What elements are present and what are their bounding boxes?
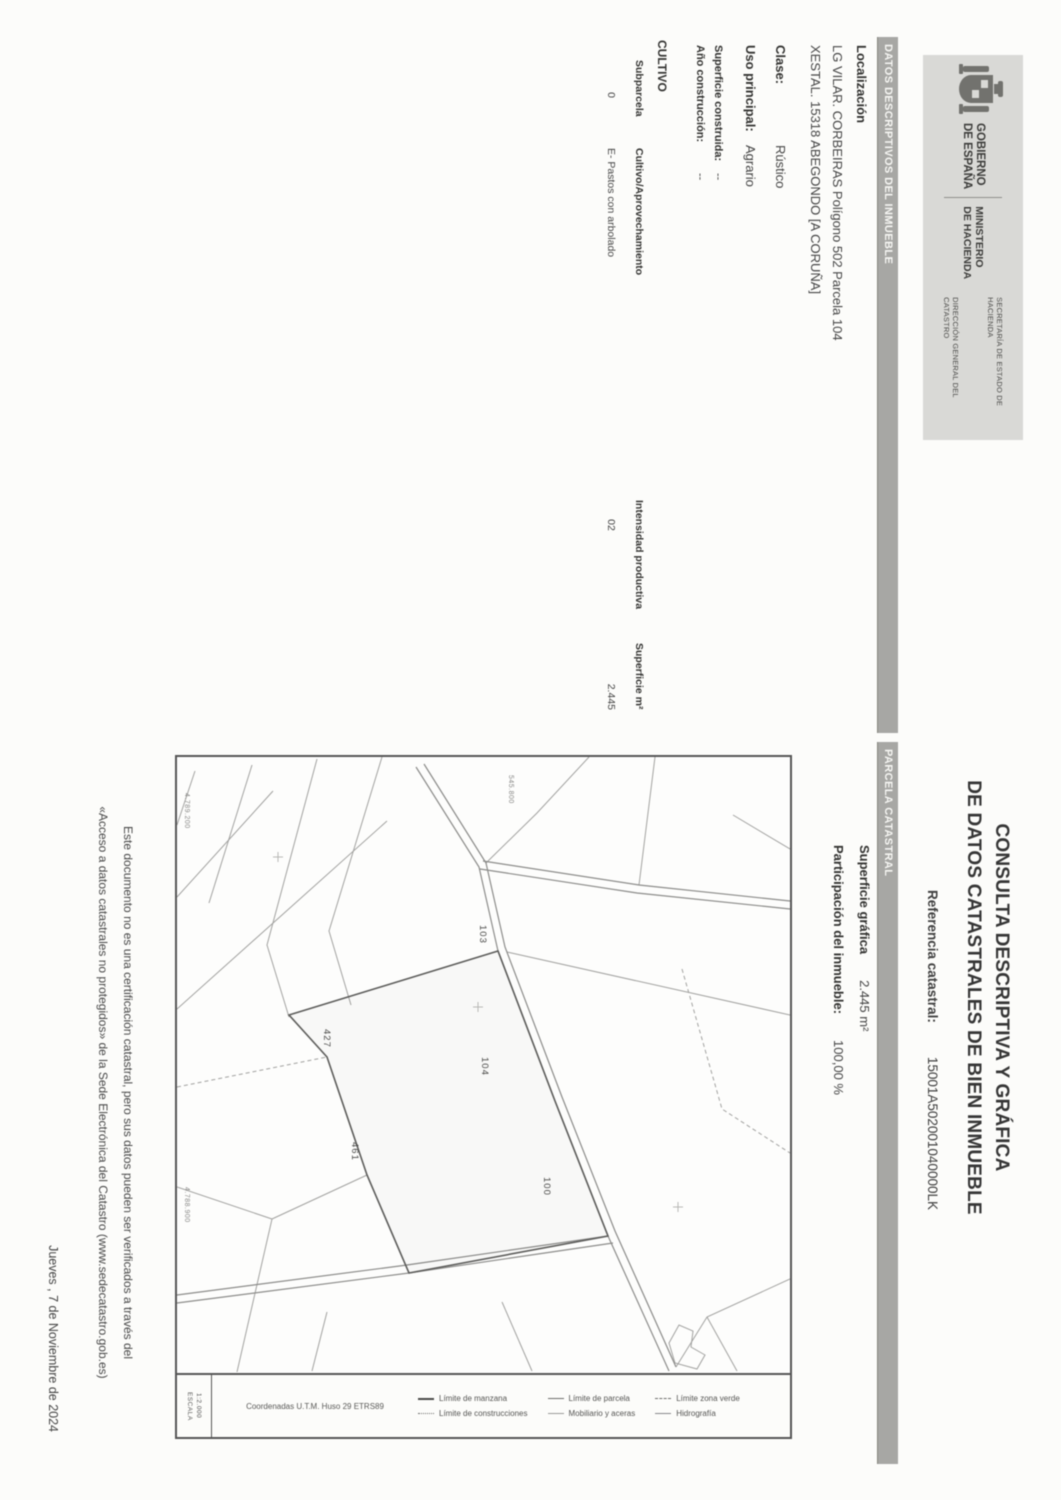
map-scale-label: ESCALA <box>186 1392 193 1421</box>
superficie-grafica-value: 2.445 m² <box>857 980 872 1031</box>
document-title: CONSULTA DESCRIPTIVA Y GRÁFICA DE DATOS … <box>959 745 1015 1250</box>
title-line-2: DE DATOS CATASTRALES DE BIEN INMUEBLE <box>959 745 987 1250</box>
legend-label: Hidrografía <box>676 1409 716 1418</box>
superficie-construida-value: -- <box>712 173 724 180</box>
superficie-grafica-label: Superficie gráfica <box>857 845 872 954</box>
clase-label: Clase: <box>773 45 788 145</box>
reference-value: 15001A502001040000LK <box>925 1057 940 1210</box>
clase-row: Clase:Rústico <box>773 45 788 188</box>
address-line-1: LG VILAR. CORBEIRAS Polígono 502 Parcela… <box>830 45 845 341</box>
ministry-name-line1: MINISTERIO <box>973 206 985 279</box>
anio-construccion-label: Año construcción: <box>694 45 706 173</box>
legend-item: Límite de construcciones <box>418 1409 528 1418</box>
cultivo-col-superficie: Superficie m² <box>633 643 645 710</box>
legend-swatch-parcela-icon <box>548 1398 564 1399</box>
uso-principal-row: Uso principal:Agrario <box>743 45 758 187</box>
legend-label: Límite de construcciones <box>439 1409 528 1418</box>
participacion-label: Participación del inmueble: <box>831 845 846 1014</box>
address-line-2: XESTAL. 15318 ABEGONDO [A CORUÑA] <box>808 45 823 294</box>
legend-item: Límite de parcela <box>548 1394 636 1403</box>
disclaimer: Este documento no es una certificación c… <box>90 745 140 1440</box>
section-bar-parcela: PARCELA CATASTRAL <box>877 742 898 1464</box>
parcel-label-104: 104 <box>479 1057 490 1076</box>
cultivo-cell-subparcela: 0 <box>605 60 617 130</box>
secretaria-text: SECRETARÍA DE ESTADO DE HACIENDA <box>986 297 1004 417</box>
superficie-grafica-row: Superficie gráfica2.445 m² <box>857 845 872 1031</box>
title-line-1: CONSULTA DESCRIPTIVA Y GRÁFICA <box>987 745 1015 1250</box>
reference-label: Referencia catastral: <box>925 890 940 1023</box>
superficie-construida-row: Superficie construida:-- <box>712 45 724 180</box>
cultivo-col-subparcela: Subparcela <box>633 60 645 117</box>
document-page: GOBIERNO DE ESPAÑA MINISTERIO DE HACIEND… <box>0 0 1061 1500</box>
section-bar-inmueble: DATOS DESCRIPTIVOS DEL INMUEBLE <box>877 37 898 733</box>
spain-coat-of-arms-icon <box>941 63 1006 115</box>
anio-construccion-value: -- <box>694 173 706 180</box>
government-logo-box: GOBIERNO DE ESPAÑA MINISTERIO DE HACIEND… <box>923 55 1023 440</box>
legend-swatch-mobiliario-icon <box>548 1413 564 1414</box>
map-coordinate-label-top: 545.800 <box>507 775 514 804</box>
subject-parcel-outline <box>289 951 608 1273</box>
legend-label: Límite zona verde <box>676 1394 740 1403</box>
legend-swatch-hidrografia-icon <box>655 1413 671 1414</box>
uso-label: Uso principal: <box>743 45 758 145</box>
parcel-label-427: 427 <box>321 1029 332 1048</box>
government-name-line1: GOBIERNO <box>973 123 986 189</box>
legend-swatch-construcciones-icon <box>418 1413 434 1414</box>
cultivo-col-cultivo: Cultivo/Aprovechamiento <box>633 148 645 275</box>
map-coordinates-note: Coordenadas U.T.M. Huso 29 ETRS89 <box>212 1375 418 1437</box>
participacion-row: Participación del inmueble:100,00 % <box>831 845 846 1095</box>
legend-label: Mobiliario y aceras <box>569 1409 636 1418</box>
map-coordinate-label-left-bottom: 4.788.900 <box>183 1187 190 1223</box>
parcel-label-100: 100 <box>541 1177 552 1196</box>
localizacion-label: Localización <box>854 45 869 123</box>
map-legend: Límite de manzana Límite de parcela Lími… <box>418 1375 790 1437</box>
disclaimer-line-1: Este documento no es una certificación c… <box>115 745 140 1440</box>
anio-construccion-row: Año construcción:-- <box>694 45 706 180</box>
parcel-label-103: 103 <box>477 925 488 944</box>
cultivo-cell-superficie: 2.445 <box>605 643 617 710</box>
document-date: Jueves , 7 de Noviembre de 2024 <box>46 1145 60 1432</box>
ministry-name-line2: DE HACIENDA <box>961 206 973 279</box>
map-scale-box: ESCALA 1:2.000 <box>177 1375 212 1437</box>
cultivo-col-intensidad: Intensidad productiva <box>633 500 645 609</box>
legend-item: Hidrografía <box>655 1409 740 1418</box>
uso-value: Agrario <box>743 145 758 187</box>
map-scale-value: 1:2.000 <box>195 1393 202 1418</box>
map-footer: ESCALA 1:2.000 Coordenadas U.T.M. Huso 2… <box>177 1373 790 1437</box>
legend-label: Límite de manzana <box>439 1394 507 1403</box>
cultivo-cell-intensidad: 02 <box>605 500 617 550</box>
cultivo-title: CULTIVO <box>655 40 669 92</box>
legend-item: Límite de manzana <box>418 1394 528 1403</box>
legend-item: Límite zona verde <box>655 1394 740 1403</box>
map-coordinate-label-left: 4.789.200 <box>183 793 190 829</box>
catastral-reference: Referencia catastral:15001A502001040000L… <box>925 890 940 1210</box>
legend-swatch-zona-verde-icon <box>655 1398 671 1399</box>
superficie-construida-label: Superficie construida: <box>712 45 724 173</box>
legend-item: Mobiliario y aceras <box>548 1409 636 1418</box>
logo-divider <box>944 197 1002 198</box>
cultivo-cell-cultivo: E- Pastos con arbolado <box>605 148 617 257</box>
direccion-text: DIRECCIÓN GENERAL DEL CATASTRO <box>942 297 960 417</box>
clase-value: Rústico <box>773 145 788 188</box>
cadastral-map: 103 427 104 461 100 4.789.200 545.800 4.… <box>175 755 792 1439</box>
government-name-line2: DE ESPAÑA <box>960 123 973 189</box>
disclaimer-line-2: «Acceso a datos catastrales no protegido… <box>90 745 115 1440</box>
participacion-value: 100,00 % <box>831 1040 846 1095</box>
parcel-label-461: 461 <box>349 1142 360 1161</box>
legend-swatch-manzana-icon <box>418 1398 434 1400</box>
legend-label: Límite de parcela <box>569 1394 630 1403</box>
